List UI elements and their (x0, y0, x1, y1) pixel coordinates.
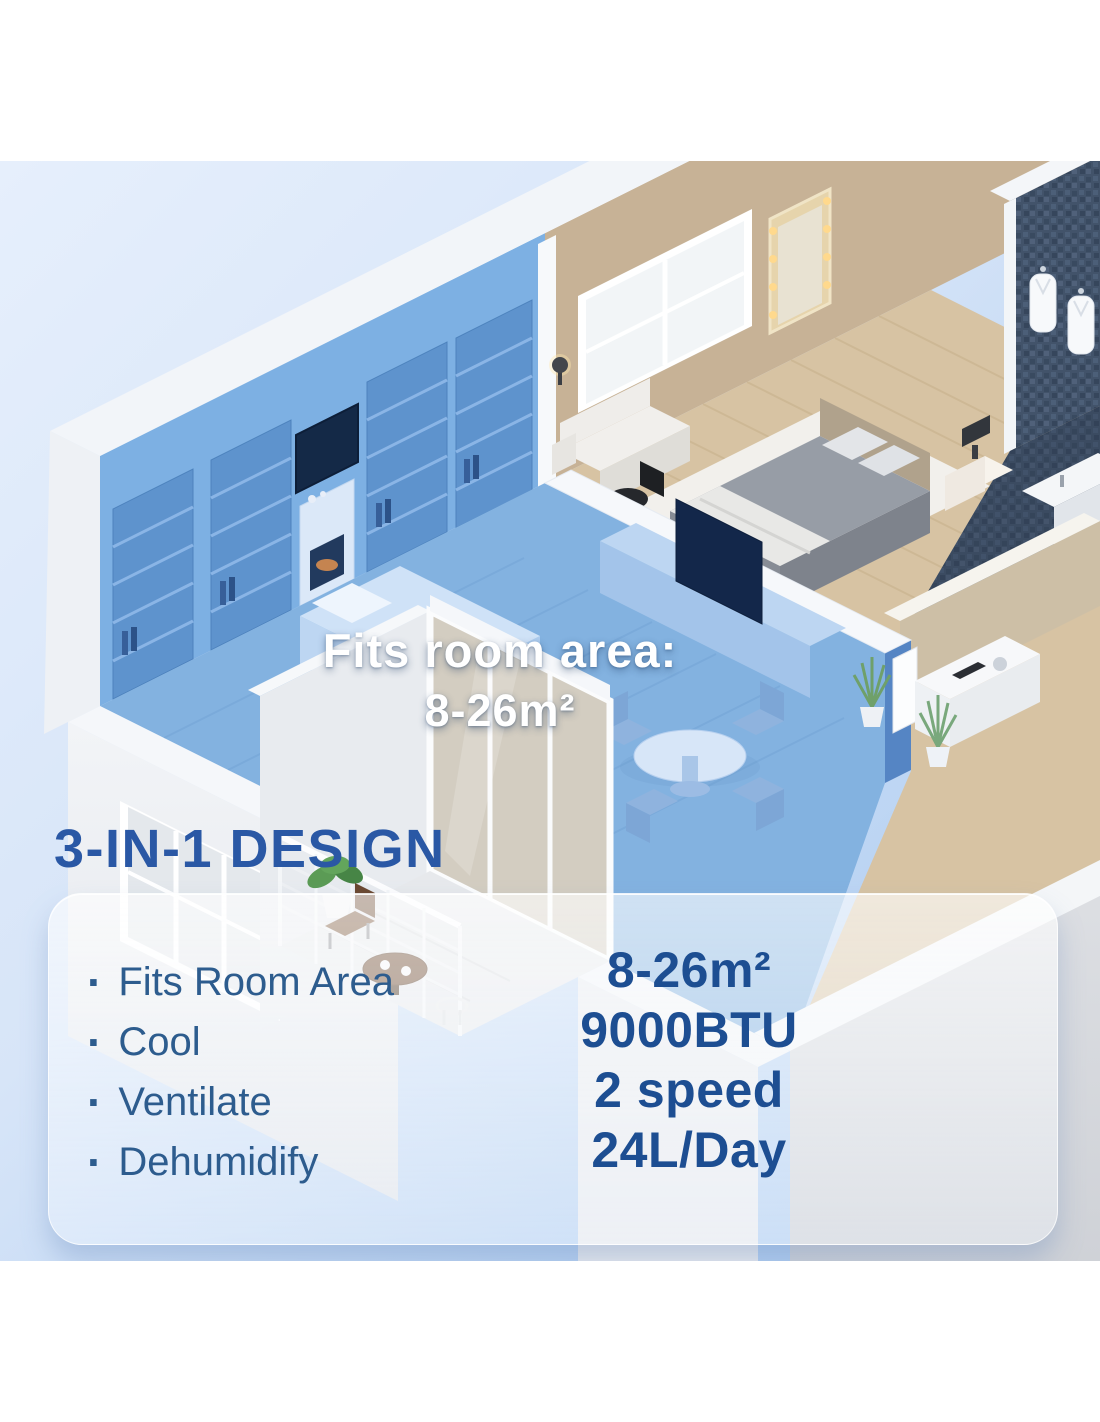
bullet-icon: · (87, 959, 102, 1005)
spec-value: 8-26m² (469, 940, 909, 1000)
bathrobe (1068, 288, 1094, 354)
letterbox-top (0, 0, 1100, 161)
section-heading: 3-IN-1 DESIGN (54, 818, 446, 880)
spec-value: 9000BTU (469, 1000, 909, 1060)
bookshelf-unit (211, 420, 291, 650)
feature-label: Dehumidify (118, 1140, 318, 1185)
bathrobe (1030, 266, 1056, 332)
feature-item: · Fits Room Area (87, 952, 394, 1012)
product-infographic: Fits room area: 8-26m² 3-IN-1 DESIGN · F… (0, 0, 1100, 1422)
room-area-value: 8-26m² (150, 685, 850, 737)
feature-label: Ventilate (118, 1080, 271, 1125)
room-area-overlay: Fits room area: 8-26m² (150, 623, 850, 737)
letterbox-bottom (0, 1261, 1100, 1422)
feature-label: Cool (118, 1020, 200, 1065)
bookshelf-unit (367, 342, 447, 572)
feature-label: Fits Room Area (118, 960, 394, 1005)
open-door (893, 647, 917, 733)
feature-panel: · Fits Room Area · Cool · Ventilate · De… (48, 893, 1058, 1245)
bullet-icon: · (87, 1139, 102, 1185)
feature-item: · Dehumidify (87, 1132, 394, 1192)
spec-value: 24L/Day (469, 1120, 909, 1180)
bullet-icon: · (87, 1019, 102, 1065)
feature-list: · Fits Room Area · Cool · Ventilate · De… (87, 952, 394, 1192)
feature-item: · Cool (87, 1012, 394, 1072)
bullet-icon: · (87, 1079, 102, 1125)
bookshelf-unit (456, 300, 532, 528)
spec-value: 2 speed (469, 1060, 909, 1120)
feature-item: · Ventilate (87, 1072, 394, 1132)
room-area-title: Fits room area: (150, 623, 850, 678)
spec-values: 8-26m² 9000BTU 2 speed 24L/Day (469, 940, 909, 1180)
